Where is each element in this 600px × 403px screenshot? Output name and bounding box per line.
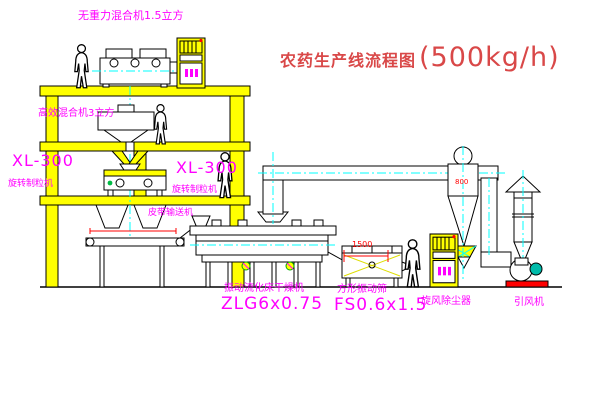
dimension-screen-feed: 1500 (352, 240, 372, 249)
induced-draft-fan (506, 258, 548, 287)
worker-second-floor (154, 105, 166, 144)
label-gravity-mixer: 无重力混合机1.5立方 (78, 10, 184, 21)
title-text: 农药生产线流程图 (280, 47, 416, 71)
title-capacity: (500kg/h) (419, 42, 560, 73)
bin-dimension-line (90, 228, 176, 234)
label-granulator-left-name: 旋转制粒机 (8, 180, 53, 189)
cyclone-dimension: 800 (455, 178, 468, 186)
control-cabinet-ground (430, 234, 458, 287)
label-dryer-name: 振动流化床干燥机 (224, 284, 304, 294)
fluid-bed-dryer (190, 216, 346, 287)
diagram-title: 农药生产线流程图 (500kg/h) (280, 42, 560, 73)
label-screen-name: 方形振动筛 (337, 285, 387, 295)
control-cabinet-top (177, 38, 205, 88)
label-granulator-right-model: XL-300 (176, 160, 238, 176)
label-belt-conveyor: 皮带输送机 (148, 209, 193, 218)
vibrating-screen (342, 246, 412, 287)
label-granulator-right-name: 旋转制粒机 (172, 186, 217, 195)
label-dryer-model: ZLG6x0.75 (221, 296, 323, 313)
label-screen-model: FS0.6x1.5 (334, 297, 427, 314)
label-high-mixer: 高效混合机3立方 (38, 109, 114, 119)
belt-conveyor (86, 224, 198, 287)
label-granulator-left-model: XL-300 (12, 153, 74, 169)
label-fan: 引风机 (514, 298, 544, 308)
worker-ground (405, 240, 420, 287)
flow-diagram-canvas: 800 (0, 0, 600, 403)
label-cyclone: 旋风除尘器 (421, 297, 471, 307)
worker-top-floor (75, 45, 88, 88)
